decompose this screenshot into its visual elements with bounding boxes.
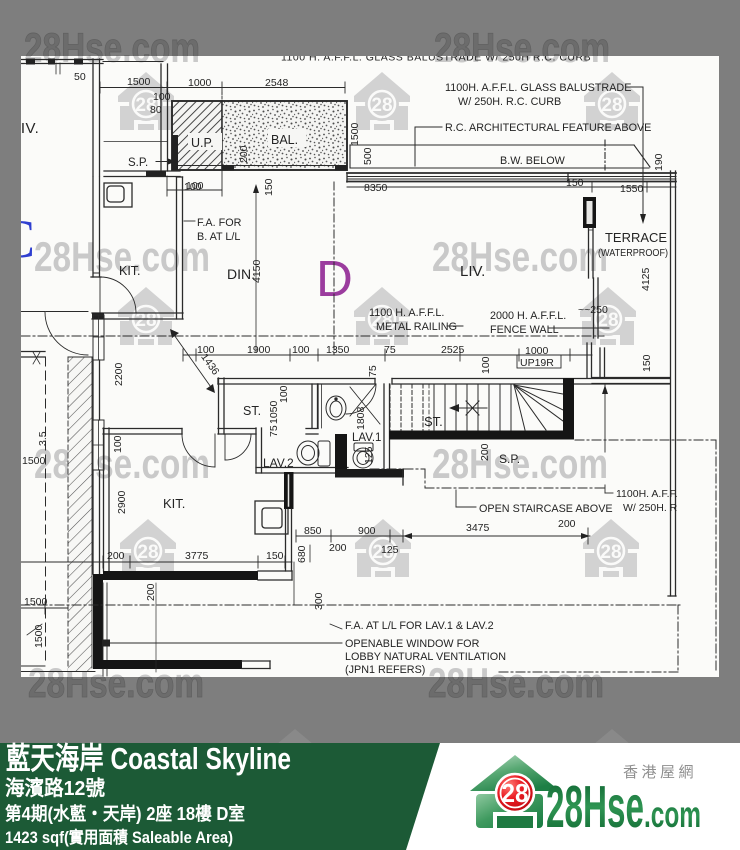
svg-text:F.A. FOR: F.A. FOR (197, 217, 242, 229)
svg-text:1100 H. A.F.F.L.: 1100 H. A.F.F.L. (369, 307, 444, 319)
svg-text:100: 100 (153, 91, 171, 103)
svg-text:8350: 8350 (364, 182, 388, 194)
svg-text:ST.: ST. (424, 414, 443, 429)
svg-text:UP19R: UP19R (520, 357, 554, 369)
svg-text:75: 75 (367, 365, 379, 377)
svg-text:OPENABLE WINDOW FOR: OPENABLE WINDOW FOR (345, 638, 480, 650)
svg-text:2200: 2200 (113, 362, 125, 386)
svg-text:第4期(水藍・天岸) 2座 18樓 D室: 第4期(水藍・天岸) 2座 18樓 D室 (5, 803, 245, 824)
svg-text:500: 500 (362, 147, 374, 165)
svg-text:藍天海岸 Coastal Skyline: 藍天海岸 Coastal Skyline (6, 742, 291, 776)
svg-text:200: 200 (107, 550, 125, 562)
svg-text:(WATERPROOF): (WATERPROOF) (598, 247, 668, 259)
svg-text:LAV.1: LAV.1 (352, 432, 381, 444)
svg-text:4125: 4125 (640, 267, 652, 291)
svg-text:S.P.: S.P. (499, 452, 520, 466)
svg-text:1423 sqf(實用面積 Saleable Area): 1423 sqf(實用面積 Saleable Area) (5, 827, 233, 847)
svg-text:BAL.: BAL. (271, 133, 298, 147)
svg-text:200: 200 (145, 583, 157, 601)
svg-text:100: 100 (292, 344, 310, 356)
svg-text:100: 100 (480, 356, 492, 374)
svg-text:900: 900 (358, 525, 376, 537)
svg-text:1900: 1900 (247, 344, 271, 356)
svg-text:.com: .com (644, 794, 701, 835)
svg-text:1550: 1550 (620, 183, 644, 195)
svg-text:B.W. BELOW: B.W. BELOW (500, 155, 566, 167)
svg-text:75: 75 (268, 425, 280, 437)
svg-text:200: 200 (558, 518, 576, 530)
svg-text:2000 H. A.F.F.L.: 2000 H. A.F.F.L. (490, 310, 566, 322)
svg-text:B. AT L/L: B. AT L/L (197, 231, 240, 243)
svg-text:680: 680 (296, 545, 308, 563)
svg-text:3.5: 3.5 (37, 431, 49, 446)
svg-text:4150: 4150 (251, 259, 263, 283)
svg-text:150: 150 (566, 177, 584, 189)
svg-text:100: 100 (278, 385, 290, 403)
svg-text:METAL RAILING: METAL RAILING (376, 321, 457, 333)
svg-text:100: 100 (112, 435, 124, 453)
svg-text:TERRACE: TERRACE (605, 230, 667, 245)
svg-text:28Hse.com: 28Hse.com (432, 233, 608, 280)
svg-text:1500: 1500 (127, 76, 151, 88)
svg-text:150: 150 (641, 354, 653, 372)
svg-text:W/ 250H. R: W/ 250H. R (623, 502, 678, 514)
svg-text:ST.: ST. (243, 404, 261, 418)
svg-text:28: 28 (502, 778, 529, 808)
svg-text:2900: 2900 (116, 490, 128, 514)
svg-text:75: 75 (384, 344, 396, 356)
svg-text:LOBBY NATURAL VENTILATION: LOBBY NATURAL VENTILATION (345, 651, 506, 663)
svg-text:LIV.: LIV. (460, 263, 485, 280)
svg-text:KIT.: KIT. (163, 496, 185, 511)
svg-text:S.P.: S.P. (128, 157, 148, 169)
svg-text:100: 100 (184, 181, 202, 193)
svg-text:3475: 3475 (466, 522, 490, 534)
svg-text:F.A. AT L/L FOR LAV.1 &: F.A. AT L/L FOR LAV.1 & LAV.2 (345, 620, 494, 632)
svg-text:W/ 250H. R.C. CURB: W/ 250H. R.C. CURB (458, 96, 561, 108)
svg-text:50: 50 (74, 71, 86, 83)
svg-text:1500: 1500 (33, 624, 45, 648)
svg-text:1500: 1500 (24, 596, 48, 608)
svg-text:1000: 1000 (188, 77, 212, 89)
svg-text:~~250: ~~250 (578, 304, 608, 316)
svg-text:200: 200 (238, 145, 250, 163)
svg-text:(JPN1 REFERS): (JPN1 REFERS) (345, 664, 425, 676)
svg-text:FENCE WALL: FENCE WALL (490, 324, 559, 336)
svg-text:2548: 2548 (265, 77, 289, 89)
svg-text:1100H. A.F.F.L. GLASS BALUS: 1100H. A.F.F.L. GLASS BALUSTRADE (445, 82, 631, 94)
svg-text:150: 150 (266, 550, 284, 562)
svg-text:850: 850 (304, 525, 322, 537)
svg-text:LAV.2: LAV.2 (263, 456, 294, 470)
svg-text:1050: 1050 (268, 400, 280, 424)
svg-text:R.C. ARCHITECTURAL FEATURE: R.C. ARCHITECTURAL FEATURE ABOVE (445, 122, 651, 134)
svg-text:KIT.: KIT. (119, 264, 141, 278)
svg-text:海濱路12號: 海濱路12號 (5, 776, 105, 800)
svg-text:3775: 3775 (185, 550, 209, 562)
svg-text:200: 200 (329, 542, 347, 554)
svg-text:300: 300 (313, 592, 325, 610)
svg-text:190: 190 (653, 153, 665, 171)
svg-text:1500: 1500 (22, 455, 46, 467)
svg-text:1100H. A.F.F.: 1100H. A.F.F. (616, 488, 678, 500)
svg-text:1808: 1808 (355, 406, 367, 430)
svg-text:1350: 1350 (326, 344, 350, 356)
svg-text:125: 125 (363, 446, 375, 464)
svg-text:香港屋網: 香港屋網 (623, 764, 697, 781)
svg-text:150: 150 (263, 178, 275, 196)
svg-text:OPEN STAIRCASE ABOVE: OPEN STAIRCASE ABOVE (479, 503, 613, 515)
svg-text:1500: 1500 (349, 122, 361, 146)
svg-text:U.P.: U.P. (191, 136, 214, 150)
svg-text:2525: 2525 (441, 344, 465, 356)
svg-text:28Hse: 28Hse (546, 774, 644, 840)
svg-text:125: 125 (381, 544, 399, 556)
svg-text:200: 200 (479, 443, 491, 461)
svg-text:80: 80 (150, 104, 162, 116)
